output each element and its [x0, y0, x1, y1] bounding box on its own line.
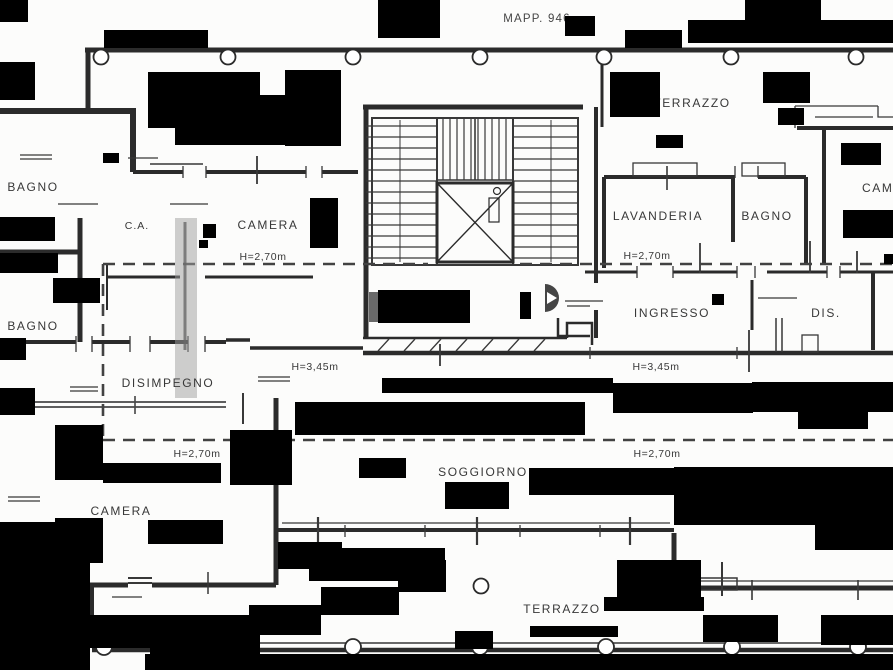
label-bagno-lower-left: BAGNO: [7, 319, 58, 333]
label-lavanderia: LAVANDERIA: [613, 209, 703, 223]
label-h270-upper-left: H=2,70m: [239, 251, 286, 263]
label-terrazzo-bottom: TERRAZZO: [523, 602, 600, 616]
label-ca: C.A.: [125, 220, 149, 232]
floor-plan-image: MAPP. 946 TERRAZZO BAGNO C.A. CAMERA H=2…: [0, 0, 893, 670]
floor-plan-canvas: MAPP. 946 TERRAZZO BAGNO C.A. CAMERA H=2…: [0, 0, 893, 670]
label-terrazzo-top: TERRAZZO: [653, 96, 730, 110]
map-number-label: MAPP. 946: [503, 13, 571, 25]
label-h270-lower-left: H=2,70m: [173, 448, 220, 460]
label-h270-lower-right: H=2,70m: [633, 448, 680, 460]
label-h345-left: H=3,45m: [291, 361, 338, 373]
label-camera-lower-left: CAMERA: [91, 504, 152, 518]
staircase: [366, 118, 578, 265]
walls-main: [0, 50, 893, 650]
label-h270-upper-right: H=2,70m: [623, 250, 670, 262]
walls-thin: [0, 106, 893, 643]
label-dis: DIS.: [811, 306, 841, 320]
label-bagno-upper-left: BAGNO: [7, 180, 58, 194]
label-disimpegno: DISIMPEGNO: [122, 376, 215, 390]
label-bagno-right: BAGNO: [741, 209, 792, 223]
elevator: [437, 183, 513, 262]
label-camera-right: CAMERA: [862, 181, 893, 195]
label-camera-upper: CAMERA: [238, 218, 299, 232]
label-h345-right: H=3,45m: [632, 361, 679, 373]
label-ingresso: INGRESSO: [634, 306, 710, 320]
scan-artifacts: [0, 0, 893, 670]
label-soggiorno: SOGGIORNO: [438, 465, 528, 479]
